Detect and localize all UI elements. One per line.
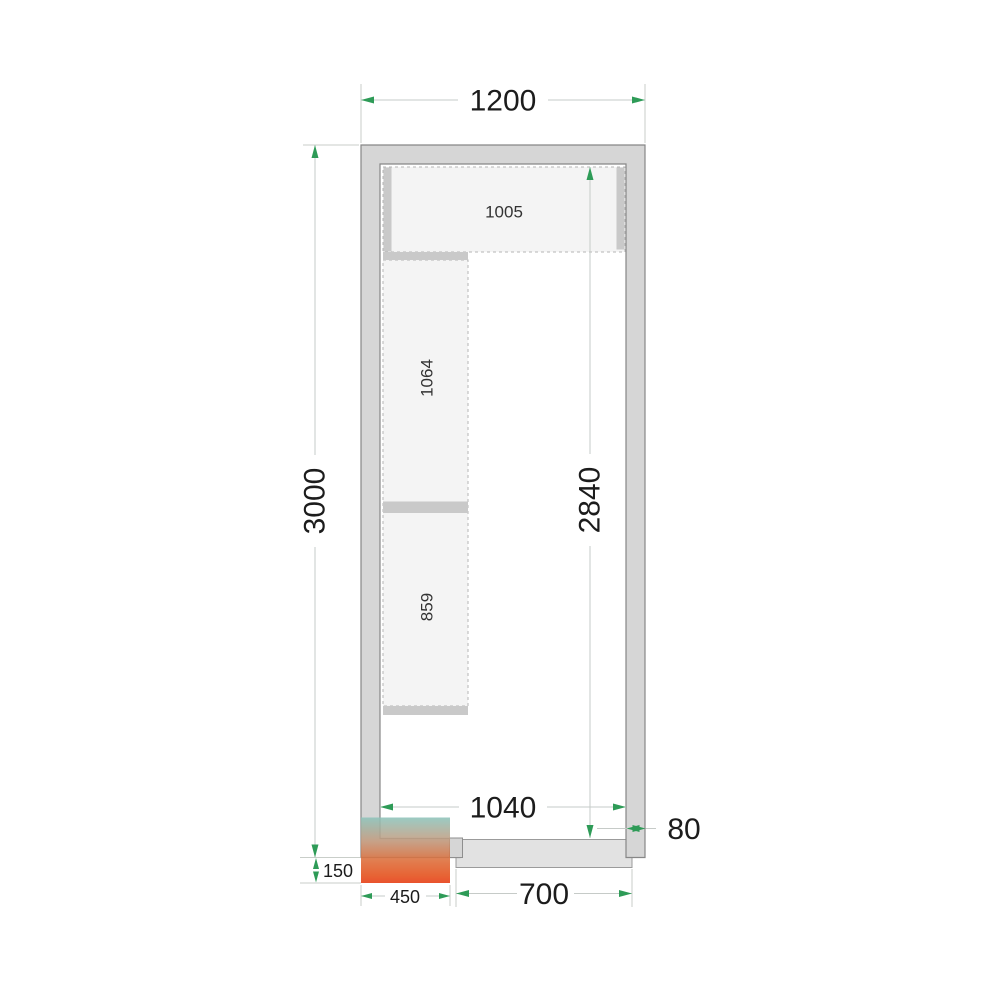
- dim-inner-width-value: 1040: [470, 792, 537, 825]
- dim-outer-height: 3000: [299, 145, 361, 858]
- arrowhead: [312, 145, 319, 158]
- door-frame-tab: [450, 838, 463, 858]
- shelving: 1005 1064 859: [383, 167, 625, 715]
- arrowhead: [613, 804, 626, 811]
- arrowhead: [361, 97, 374, 104]
- arrowhead: [619, 890, 632, 897]
- arrowhead: [313, 872, 319, 883]
- dim-inner-height: 2840: [574, 167, 607, 838]
- dim-unit-width: 450: [361, 885, 450, 907]
- arrowhead: [456, 890, 469, 897]
- condensing-unit: [361, 818, 450, 884]
- arrowhead: [587, 825, 594, 838]
- shelf-support-bar: [384, 168, 392, 252]
- dim-door-width-value: 700: [519, 878, 569, 911]
- dim-outer-width: 1200: [361, 84, 645, 143]
- shelf-left-upper-label: 1064: [418, 359, 437, 397]
- arrowhead: [380, 804, 393, 811]
- dim-unit-overhang-value: 150: [323, 861, 353, 881]
- shelf-support-bar: [383, 706, 468, 715]
- dim-outer-height-value: 3000: [299, 468, 332, 535]
- shelf-support-bar: [383, 502, 468, 514]
- plan-svg: 1005 1064 859 1200 3000 2840 1040: [0, 0, 1000, 1000]
- dim-unit-overhang: 150: [300, 858, 361, 883]
- arrowhead: [361, 893, 372, 899]
- shelf-top-label: 1005: [485, 203, 523, 222]
- shelf-support-bar: [617, 168, 625, 250]
- shelf-left-lower-label: 859: [418, 593, 437, 621]
- dim-inner-height-value: 2840: [574, 467, 607, 534]
- arrowhead: [439, 893, 450, 899]
- dim-unit-width-value: 450: [390, 887, 420, 907]
- door-leaf: [456, 840, 632, 868]
- dim-outer-width-value: 1200: [470, 85, 537, 118]
- floor-plan-drawing: 1005 1064 859 1200 3000 2840 1040: [0, 0, 1000, 1000]
- arrowhead: [312, 845, 319, 858]
- arrowhead: [313, 858, 319, 869]
- dim-door-width: 700: [456, 869, 632, 911]
- shelf-left-column: [383, 260, 468, 706]
- shelf-support-bar: [383, 252, 468, 260]
- dim-wall-thickness-value: 80: [667, 813, 700, 846]
- arrowhead: [632, 97, 645, 104]
